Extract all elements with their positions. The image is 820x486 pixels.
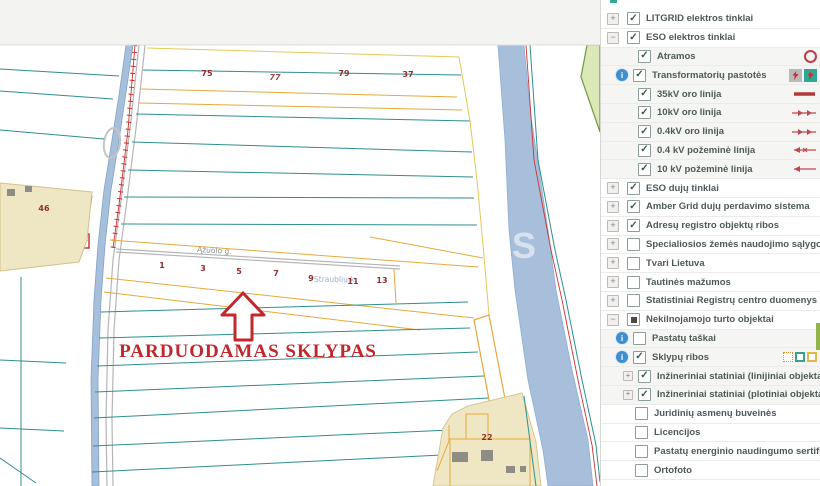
layer-label: Tvari Lietuva xyxy=(646,258,705,269)
checkbox[interactable] xyxy=(627,276,640,289)
line-x-arrow-legend-icon xyxy=(791,145,817,155)
svg-text:3: 3 xyxy=(200,264,206,273)
layer-label: Sklypų ribos xyxy=(652,352,709,363)
checkbox[interactable] xyxy=(633,351,646,364)
parcel-number: 46 xyxy=(38,204,50,213)
pole-legend-icon xyxy=(804,50,817,63)
info-icon[interactable] xyxy=(616,351,628,363)
layer-label: Pastatų taškai xyxy=(652,333,716,344)
checkbox-partial[interactable] xyxy=(627,313,640,326)
svg-text:37: 37 xyxy=(402,70,413,79)
collapse-icon[interactable] xyxy=(607,32,619,44)
layer-row-energinio[interactable]: Pastatų energinio naudingumo sertifikata… xyxy=(601,442,820,461)
layer-row-transformatoriu[interactable]: Transformatorių pastotės xyxy=(601,66,820,85)
layer-row-inzineriniai-plotiniai[interactable]: Inžineriniai statiniai (plotiniai objekt… xyxy=(601,386,820,405)
parcel-dotted-square-icon xyxy=(783,352,793,362)
layer-label: ESO elektros tinklai xyxy=(646,32,735,43)
svg-text:11: 11 xyxy=(347,277,359,286)
layer-row-tautines-mazumos[interactable]: Tautinės mažumos xyxy=(601,273,820,292)
layer-row-atramos[interactable]: Atramos xyxy=(601,48,820,67)
layer-row-licencijos[interactable]: Licencijos xyxy=(601,424,820,443)
checkbox[interactable] xyxy=(627,31,640,44)
layer-row-amber-grid[interactable]: Amber Grid dujų perdavimo sistema xyxy=(601,198,820,217)
building xyxy=(520,466,526,472)
layer-label: Transformatorių pastotės xyxy=(652,70,767,81)
checkbox[interactable] xyxy=(627,257,640,270)
svg-text:5: 5 xyxy=(236,267,242,276)
expand-icon[interactable] xyxy=(607,295,619,307)
checkbox[interactable] xyxy=(635,407,648,420)
info-icon[interactable] xyxy=(616,69,628,81)
svg-text:75: 75 xyxy=(201,69,213,78)
sale-text: PARDUODAMAS SKLYPAS xyxy=(119,341,377,362)
transformer-legend-icon xyxy=(789,69,817,82)
layer-label: Juridinių asmenų buveinės xyxy=(654,408,776,419)
layer-label: 10kV oro linija xyxy=(657,107,721,118)
layer-row-ortofoto[interactable]: Ortofoto xyxy=(601,461,820,480)
panel-slider-handle[interactable] xyxy=(816,323,820,350)
layer-label: Statistiniai Registrų centro duomenys xyxy=(646,295,817,306)
layer-row-eso-duju[interactable]: ESO dujų tinklai xyxy=(601,179,820,198)
checkbox[interactable] xyxy=(638,370,651,383)
line-arrows-legend-icon xyxy=(791,127,817,137)
layer-label: Specialiosios žemės naudojimo sąlygos xyxy=(646,239,820,250)
layer-panel: LITGRID elektros tinklai ESO elektros ti… xyxy=(600,0,820,486)
expand-icon[interactable] xyxy=(607,238,619,250)
layer-label: 0.4kV oro linija xyxy=(657,126,724,137)
village-area-left: 46 xyxy=(0,183,92,271)
checkbox[interactable] xyxy=(627,219,640,232)
checkbox[interactable] xyxy=(627,182,640,195)
map-canvas[interactable]: S xyxy=(0,0,600,486)
layer-row-juridiniu[interactable]: Juridinių asmenų buveinės xyxy=(601,405,820,424)
checkbox[interactable] xyxy=(627,200,640,213)
line-thick-legend-icon xyxy=(791,89,817,99)
checkbox[interactable] xyxy=(627,12,640,25)
layer-row-inzineriniai-linijiniai[interactable]: Inžineriniai statiniai (linijiniai objek… xyxy=(601,367,820,386)
parcel-yellow-square-icon xyxy=(807,352,817,362)
layer-row-04kv[interactable]: 0.4kV oro linija xyxy=(601,123,820,142)
layer-row-specialiosios[interactable]: Specialiosios žemės naudojimo sąlygos xyxy=(601,236,820,255)
layer-row-sklypu-ribos[interactable]: Sklypų ribos xyxy=(601,348,820,367)
layer-row-eso-elektros[interactable]: ESO elektros tinklai xyxy=(601,29,820,48)
layer-row-10kv-pozemine[interactable]: 10 kV požeminė linija xyxy=(601,160,820,179)
checkbox[interactable] xyxy=(638,88,651,101)
layer-row-tvari-lietuva[interactable]: Tvari Lietuva xyxy=(601,254,820,273)
map-svg: S xyxy=(0,0,600,486)
line-arrow-left-legend-icon xyxy=(791,164,817,174)
layer-row-nekilnojamojo[interactable]: Nekilnojamojo turto objektai xyxy=(601,311,820,330)
layer-label: 35kV oro linija xyxy=(657,89,721,100)
parcel-number: 22 xyxy=(481,433,492,442)
checkbox[interactable] xyxy=(627,238,640,251)
svg-text:7: 7 xyxy=(273,269,279,278)
layer-label: Ortofoto xyxy=(654,465,692,476)
clipped-row-fragment xyxy=(610,0,617,3)
checkbox[interactable] xyxy=(635,445,648,458)
building xyxy=(506,466,515,473)
layer-label: Tautinės mažumos xyxy=(646,277,731,288)
layer-label: ESO dujų tinklai xyxy=(646,183,719,194)
expand-icon[interactable] xyxy=(607,182,619,194)
layer-label: Atramos xyxy=(657,51,696,62)
building xyxy=(25,186,32,192)
gis-app: S xyxy=(0,0,820,486)
building xyxy=(7,189,15,196)
expand-icon[interactable] xyxy=(607,220,619,232)
parcel-teal-square-icon xyxy=(795,352,805,362)
layer-row-litgrid[interactable]: LITGRID elektros tinklai xyxy=(601,10,820,29)
layer-row-statistiniai[interactable]: Statistiniai Registrų centro duomenys xyxy=(601,292,820,311)
layer-label: LITGRID elektros tinklai xyxy=(646,13,753,24)
checkbox[interactable] xyxy=(633,332,646,345)
svg-text:1: 1 xyxy=(159,261,165,270)
layer-label: Pastatų energinio naudingumo sertifikata… xyxy=(654,446,820,457)
watermark-letter: S xyxy=(512,225,536,266)
layer-label: Inžineriniai statiniai (plotiniai objekt… xyxy=(657,389,820,400)
checkbox[interactable] xyxy=(638,388,651,401)
expand-icon[interactable] xyxy=(623,390,633,400)
checkbox[interactable] xyxy=(638,163,651,176)
checkbox[interactable] xyxy=(627,294,640,307)
layer-label: 10 kV požeminė linija xyxy=(657,164,753,175)
collapse-icon[interactable] xyxy=(607,314,619,326)
layer-label: Licencijos xyxy=(654,427,700,438)
line-arrows-legend-icon xyxy=(791,108,817,118)
checkbox[interactable] xyxy=(638,125,651,138)
layer-label: Adresų registro objektų ribos xyxy=(646,220,779,231)
svg-text:79: 79 xyxy=(338,69,350,78)
checkbox[interactable] xyxy=(638,144,651,157)
building xyxy=(481,450,493,461)
layer-row-35kv[interactable]: 35kV oro linija xyxy=(601,85,820,104)
layer-row-pastatu-taskai[interactable]: Pastatų taškai xyxy=(601,330,820,349)
svg-text:77: 77 xyxy=(269,73,281,82)
layer-label: 0.4 kV požeminė linija xyxy=(657,145,755,156)
map-top-band xyxy=(0,0,600,45)
parcel-legend-icons xyxy=(783,352,817,362)
layer-row-10kv[interactable]: 10kV oro linija xyxy=(601,104,820,123)
checkbox[interactable] xyxy=(638,106,651,119)
layer-row-adresu-registro[interactable]: Adresų registro objektų ribos xyxy=(601,217,820,236)
checkbox[interactable] xyxy=(635,426,648,439)
layer-label: Amber Grid dujų perdavimo sistema xyxy=(646,201,810,212)
checkbox[interactable] xyxy=(633,69,646,82)
building xyxy=(452,452,468,462)
checkbox[interactable] xyxy=(635,464,648,477)
layer-label: Nekilnojamojo turto objektai xyxy=(646,314,774,325)
svg-text:9: 9 xyxy=(308,274,314,283)
info-icon[interactable] xyxy=(616,332,628,344)
checkbox[interactable] xyxy=(638,50,651,63)
svg-text:13: 13 xyxy=(376,276,387,285)
expand-icon[interactable] xyxy=(607,13,619,25)
expand-icon[interactable] xyxy=(607,276,619,288)
expand-icon[interactable] xyxy=(623,371,633,381)
layer-label: Inžineriniai statiniai (linijiniai objek… xyxy=(657,371,820,382)
expand-icon[interactable] xyxy=(607,257,619,269)
expand-icon[interactable] xyxy=(607,201,619,213)
layer-row-04kv-pozemine[interactable]: 0.4 kV požeminė linija xyxy=(601,142,820,161)
